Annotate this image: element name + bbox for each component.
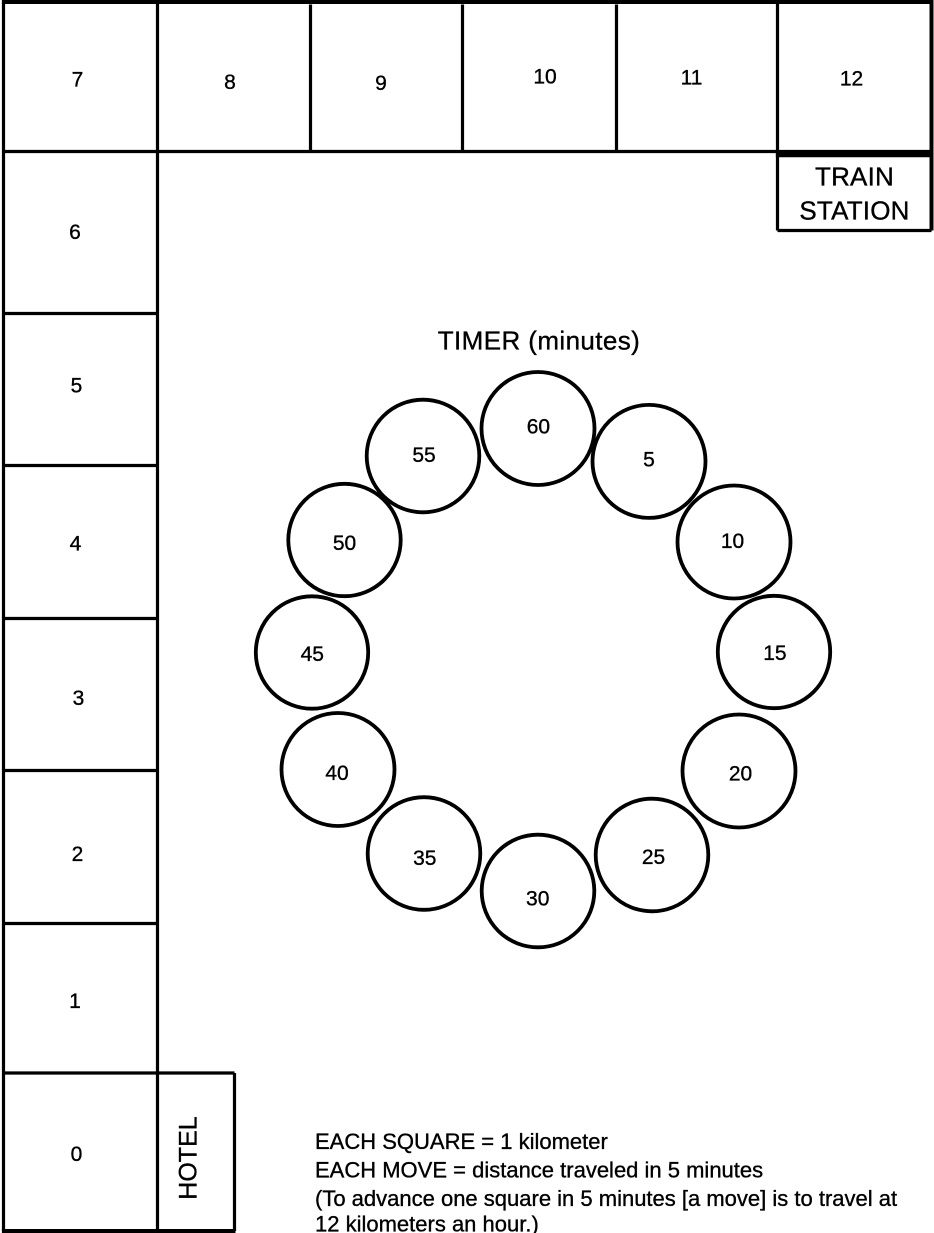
svg-text:0: 0 [71, 1143, 83, 1166]
svg-text:60: 60 [527, 415, 550, 438]
svg-text:40: 40 [325, 762, 348, 785]
svg-text:TIMER (minutes): TIMER (minutes) [438, 326, 640, 356]
svg-text:EACH MOVE = distance traveled: EACH MOVE = distance traveled in 5 minut… [315, 1158, 763, 1183]
svg-text:STATION: STATION [799, 196, 909, 226]
svg-text:5: 5 [71, 375, 83, 398]
svg-text:55: 55 [412, 444, 435, 467]
svg-text:4: 4 [70, 533, 82, 556]
svg-text:11: 11 [681, 67, 703, 90]
svg-text:5: 5 [643, 449, 655, 472]
svg-text:EACH SQUARE = 1 kilometer: EACH SQUARE = 1 kilometer [315, 1129, 608, 1154]
svg-text:HOTEL: HOTEL [175, 1116, 203, 1199]
svg-text:2: 2 [72, 843, 84, 866]
svg-text:35: 35 [413, 847, 436, 870]
svg-text:(To advance one square in 5 mi: (To advance one square in 5 minutes [a m… [315, 1186, 897, 1211]
svg-text:50: 50 [333, 532, 356, 555]
svg-text:20: 20 [729, 763, 752, 786]
svg-text:TRAIN: TRAIN [815, 162, 894, 192]
svg-text:10: 10 [721, 530, 744, 553]
svg-text:12 kilometers an hour.): 12 kilometers an hour.) [315, 1212, 539, 1233]
svg-text:9: 9 [375, 72, 387, 95]
svg-text:10: 10 [533, 66, 556, 89]
svg-text:7: 7 [72, 69, 84, 92]
svg-text:45: 45 [301, 643, 324, 666]
svg-text:30: 30 [526, 888, 549, 911]
svg-text:8: 8 [224, 71, 236, 94]
svg-text:15: 15 [763, 642, 786, 665]
svg-text:12: 12 [840, 68, 863, 91]
svg-text:1: 1 [69, 990, 81, 1013]
svg-text:3: 3 [73, 687, 85, 710]
svg-text:25: 25 [642, 846, 665, 869]
svg-text:6: 6 [69, 221, 81, 244]
